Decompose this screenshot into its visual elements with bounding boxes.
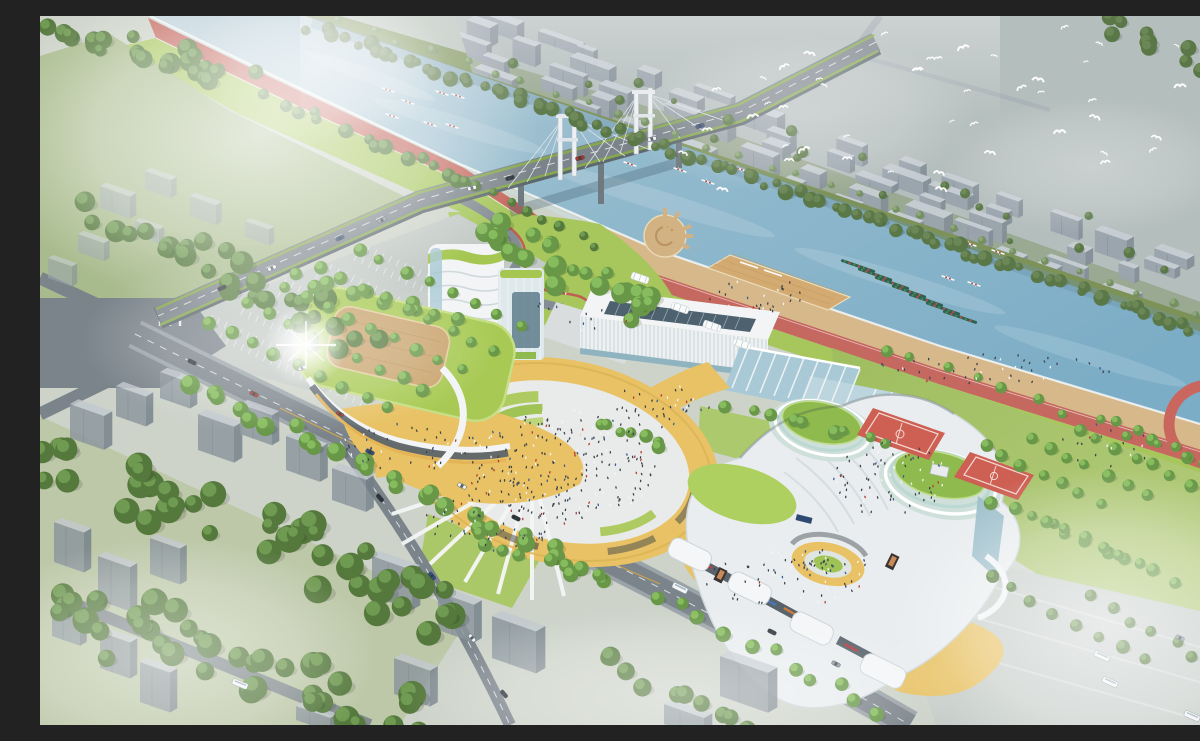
mist-bottom-right	[890, 466, 1200, 725]
person-dot	[824, 601, 826, 604]
tree-highlight	[264, 503, 277, 516]
tree-highlight	[866, 432, 872, 438]
person-dot	[488, 493, 489, 496]
person-dot	[541, 539, 542, 542]
tree-highlight	[601, 127, 607, 133]
person-dot	[576, 512, 577, 515]
tree-highlight	[838, 204, 846, 212]
person-dot	[953, 370, 954, 373]
person-dot	[489, 437, 490, 440]
person-dot	[1141, 445, 1142, 448]
person-dot	[547, 418, 548, 421]
person-dot	[881, 363, 882, 366]
person-dot	[861, 510, 862, 513]
person-dot	[491, 467, 492, 470]
tree-highlight	[1164, 318, 1172, 326]
tree-highlight	[1182, 41, 1191, 50]
person-dot	[784, 582, 785, 585]
tree-highlight	[593, 569, 600, 576]
tree-highlight	[580, 232, 585, 237]
tree-highlight	[864, 211, 871, 218]
person-dot	[898, 369, 899, 372]
person-dot	[827, 587, 828, 590]
tree-highlight	[953, 237, 962, 246]
tree-highlight	[1062, 453, 1068, 459]
person-dot	[389, 457, 390, 460]
person-dot	[860, 504, 861, 507]
tree-highlight	[1122, 432, 1127, 437]
tree-highlight	[719, 401, 726, 408]
tree-highlight	[1192, 312, 1196, 316]
tree-highlight	[1170, 299, 1175, 304]
tree-highlight	[995, 260, 1002, 267]
tree-highlight	[876, 218, 881, 223]
person-dot	[872, 446, 873, 449]
person-dot	[919, 371, 920, 374]
person-dot	[580, 411, 582, 414]
tree-highlight	[1055, 275, 1062, 282]
tree-highlight	[1134, 291, 1138, 295]
tree-highlight	[624, 313, 633, 322]
tree-highlight	[1080, 460, 1086, 466]
person-dot	[809, 574, 810, 577]
person-dot	[426, 514, 428, 517]
tree-highlight	[307, 440, 316, 449]
person-dot	[556, 306, 557, 309]
person-dot	[714, 568, 715, 571]
person-dot	[564, 464, 565, 467]
tree-highlight	[423, 485, 432, 494]
tree-highlight	[1134, 426, 1140, 432]
person-dot	[541, 452, 542, 455]
person-dot	[502, 436, 503, 439]
person-dot	[918, 456, 919, 459]
tree-highlight	[644, 297, 652, 305]
person-dot	[529, 499, 530, 502]
tree-highlight	[497, 545, 504, 552]
person-dot	[593, 436, 594, 439]
tree-highlight	[1105, 27, 1114, 36]
tree-highlight	[1116, 16, 1123, 23]
mist-river-top	[190, 16, 450, 146]
tree-highlight	[590, 243, 595, 248]
tree-highlight	[474, 528, 481, 535]
tree-highlight	[202, 482, 216, 496]
person-dot	[513, 478, 514, 481]
person-dot	[929, 377, 930, 380]
tree-highlight	[1142, 40, 1151, 49]
person-dot	[821, 594, 822, 597]
person-dot	[825, 580, 826, 583]
person-dot	[645, 405, 646, 408]
tree-highlight	[137, 511, 151, 525]
tree-highlight	[388, 471, 397, 480]
tree-highlight	[1154, 313, 1162, 321]
tree-highlight	[263, 519, 272, 528]
tree-highlight	[1007, 238, 1010, 241]
person-dot	[362, 460, 363, 463]
person-dot	[346, 448, 347, 451]
tree-highlight	[653, 441, 661, 449]
person-dot	[527, 498, 528, 501]
person-dot	[827, 568, 828, 571]
tree-highlight	[545, 554, 552, 561]
tree-highlight	[1079, 282, 1085, 288]
tree-highlight	[591, 277, 602, 288]
person-dot	[461, 503, 462, 506]
tree-highlight	[203, 526, 212, 535]
person-dot	[862, 500, 863, 503]
person-dot	[869, 486, 870, 489]
person-dot	[479, 515, 480, 518]
person-dot	[490, 456, 491, 459]
person-dot	[928, 358, 929, 361]
person-dot	[524, 419, 525, 422]
tree-highlight	[631, 285, 642, 296]
tree-highlight	[890, 224, 897, 231]
person-dot	[760, 304, 761, 307]
tree-highlight	[970, 254, 975, 259]
tree-highlight	[978, 237, 983, 242]
person-dot	[590, 318, 591, 321]
tree-highlight	[1133, 454, 1139, 460]
person-dot	[472, 461, 473, 464]
person-dot	[351, 453, 352, 456]
tree-highlight	[1075, 425, 1082, 432]
architectural-rendering	[40, 16, 1200, 725]
tree-highlight	[833, 203, 838, 208]
tree-highlight	[1014, 460, 1021, 467]
person-dot	[642, 465, 643, 468]
tree-highlight	[158, 482, 170, 494]
person-dot	[601, 461, 602, 464]
person-dot	[1018, 380, 1019, 383]
person-dot	[541, 533, 542, 536]
person-dot	[489, 490, 491, 493]
person-dot	[583, 322, 584, 325]
tree-highlight	[57, 440, 69, 452]
person-dot	[616, 408, 617, 411]
tree-highlight	[116, 499, 130, 513]
tree-highlight	[1161, 266, 1166, 271]
tree-highlight	[1010, 248, 1014, 252]
tree-highlight	[1112, 416, 1118, 422]
mist-center-left	[80, 246, 500, 436]
person-dot	[569, 497, 570, 500]
person-dot	[667, 396, 668, 399]
tree-highlight	[1171, 442, 1177, 448]
person-dot	[1130, 454, 1131, 457]
person-dot	[905, 455, 906, 458]
tree-highlight	[652, 592, 660, 600]
tree-highlight	[288, 527, 298, 537]
tree-highlight	[1075, 244, 1080, 249]
person-dot	[615, 463, 616, 466]
tree-highlight	[518, 535, 528, 545]
tree-highlight	[632, 299, 640, 307]
tree-highlight	[564, 567, 573, 576]
tree-highlight	[789, 414, 797, 422]
tree-highlight	[602, 419, 608, 425]
tree-highlight	[765, 409, 772, 416]
tree-highlight	[548, 539, 557, 548]
person-dot	[1031, 369, 1032, 372]
person-dot	[686, 409, 687, 412]
tree-highlight	[1177, 318, 1184, 325]
tree-highlight	[301, 512, 316, 527]
tree-highlight	[580, 267, 587, 274]
tree-highlight	[996, 382, 1002, 388]
person-dot	[663, 415, 664, 418]
person-dot	[504, 479, 505, 482]
person-dot	[366, 438, 367, 441]
tree-highlight	[602, 268, 609, 275]
person-dot	[633, 433, 634, 436]
tree-highlight	[1077, 269, 1080, 272]
tree-highlight	[485, 521, 494, 530]
tree-highlight	[1002, 257, 1010, 265]
mist-bottom-center	[400, 606, 960, 725]
tree-highlight	[57, 470, 70, 483]
tree-highlight	[168, 497, 178, 507]
tree-highlight	[930, 239, 936, 245]
person-dot	[627, 439, 628, 442]
tree-highlight	[560, 560, 568, 568]
tree-highlight	[978, 251, 987, 260]
tree-highlight	[1045, 443, 1052, 450]
tree-highlight	[1109, 443, 1116, 450]
person-dot	[771, 551, 772, 554]
person-dot	[772, 310, 773, 313]
tree-highlight	[1124, 247, 1130, 253]
person-dot	[586, 469, 587, 472]
person-dot	[1108, 370, 1109, 373]
tree-highlight	[410, 574, 425, 589]
person-dot	[834, 596, 835, 599]
tree-highlight	[1121, 302, 1126, 307]
tree-highlight	[1154, 440, 1159, 445]
tree-highlight	[677, 598, 684, 605]
tree-highlight	[1132, 301, 1139, 308]
person-dot	[479, 477, 480, 480]
person-dot	[725, 293, 726, 296]
person-dot	[830, 569, 831, 572]
tree-highlight	[750, 406, 756, 412]
tree-highlight	[905, 353, 910, 358]
person-dot	[528, 478, 530, 481]
person-dot	[596, 467, 597, 470]
tree-highlight	[923, 232, 930, 239]
tree-highlight	[1015, 263, 1019, 267]
tree-highlight	[1147, 458, 1154, 465]
person-dot	[529, 422, 530, 425]
tree-highlight	[1045, 275, 1052, 282]
person-dot	[540, 474, 541, 477]
tree-highlight	[513, 549, 520, 556]
person-dot	[744, 580, 745, 583]
tree-highlight	[1147, 434, 1154, 441]
tree-highlight	[1180, 55, 1187, 62]
tree-highlight	[361, 463, 369, 471]
person-dot	[785, 559, 786, 562]
tree-highlight	[309, 526, 318, 535]
person-dot	[532, 431, 533, 434]
tree-highlight	[132, 463, 143, 474]
person-dot	[569, 321, 570, 324]
person-dot	[538, 423, 539, 426]
tree-highlight	[1095, 291, 1104, 300]
tree-highlight	[1097, 415, 1102, 420]
person-dot	[542, 494, 543, 497]
tree-highlight	[616, 428, 622, 434]
tree-highlight	[517, 321, 523, 327]
tree-highlight	[945, 238, 952, 245]
tree-highlight	[1091, 434, 1097, 440]
tree-highlight	[829, 426, 837, 434]
person-dot	[571, 431, 573, 434]
person-dot	[585, 452, 586, 455]
person-dot	[1017, 354, 1018, 357]
person-dot	[387, 438, 388, 441]
tree-highlight	[543, 239, 551, 247]
person-dot	[600, 432, 601, 435]
tree-highlight	[996, 450, 1003, 457]
tree-highlight	[839, 427, 845, 433]
person-dot	[641, 451, 642, 454]
tree-highlight	[893, 206, 897, 210]
tree-highlight	[328, 443, 339, 454]
tree-highlight	[640, 430, 648, 438]
person-dot	[519, 493, 521, 496]
tree-highlight	[546, 276, 558, 288]
person-dot	[586, 475, 587, 478]
tree-highlight	[1034, 394, 1040, 400]
person-dot	[1111, 447, 1112, 450]
scene-canvas	[40, 16, 1200, 725]
person-dot	[846, 488, 847, 491]
mist-city-2	[940, 96, 1200, 236]
mist-bottom-left	[40, 536, 380, 725]
person-dot	[584, 437, 586, 440]
tree-highlight	[1184, 327, 1190, 333]
tree-highlight	[1033, 271, 1040, 278]
person-dot	[432, 449, 433, 452]
person-dot	[638, 414, 639, 417]
person-dot	[877, 465, 878, 468]
person-dot	[747, 297, 748, 300]
tree-highlight	[378, 570, 391, 583]
person-dot	[656, 415, 657, 418]
tree-highlight	[613, 284, 625, 296]
person-dot	[845, 585, 846, 588]
tree-highlight	[1042, 258, 1046, 262]
mist-city	[620, 36, 980, 196]
person-dot	[440, 461, 441, 464]
person-dot	[537, 435, 538, 438]
person-dot	[782, 576, 784, 579]
person-dot	[582, 428, 583, 431]
tree-highlight	[1027, 433, 1033, 439]
tree-highlight	[186, 496, 196, 506]
tree-highlight	[390, 480, 398, 488]
person-dot	[1047, 357, 1048, 360]
tree-highlight	[974, 373, 979, 378]
tree-highlight	[548, 256, 559, 267]
tree-highlight	[882, 346, 889, 353]
person-dot	[514, 450, 515, 453]
tree-highlight	[852, 209, 858, 215]
tree-highlight	[554, 221, 560, 227]
person-dot	[732, 597, 734, 600]
tree-highlight	[911, 226, 919, 234]
tree-highlight	[944, 362, 950, 368]
tree-highlight	[1107, 280, 1111, 284]
person-dot	[577, 448, 578, 451]
tree-highlight	[961, 251, 967, 257]
person-dot	[1103, 370, 1104, 373]
tree-highlight	[797, 417, 804, 424]
tree-highlight	[1058, 410, 1063, 415]
person-dot	[827, 559, 828, 562]
person-dot	[594, 327, 595, 330]
person-dot	[546, 521, 547, 524]
tree-highlight	[436, 498, 447, 509]
tree-highlight	[1182, 452, 1187, 457]
person-dot	[481, 464, 482, 467]
person-dot	[610, 451, 611, 454]
person-dot	[505, 448, 506, 451]
person-dot	[719, 290, 721, 293]
tree-highlight	[1138, 308, 1145, 315]
tree-highlight	[916, 211, 920, 215]
person-dot	[424, 439, 425, 442]
person-dot	[444, 511, 445, 514]
tree-highlight	[982, 440, 989, 447]
